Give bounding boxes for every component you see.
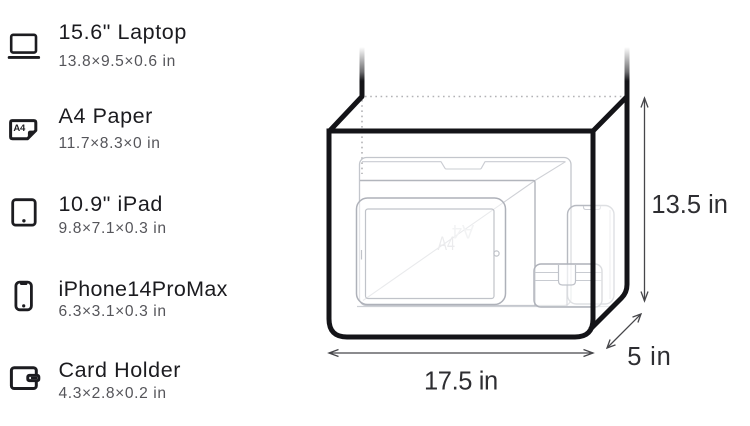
svg-text:13.5 in: 13.5 in xyxy=(651,191,728,219)
svg-text:5 in: 5 in xyxy=(627,343,671,371)
svg-text:17.5 in: 17.5 in xyxy=(424,368,498,396)
